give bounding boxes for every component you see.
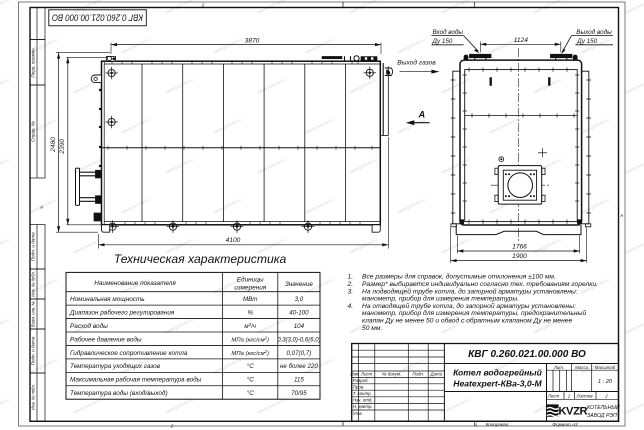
svg-text:2.: 2. xyxy=(347,281,354,288)
svg-text:А: А xyxy=(39,205,43,210)
svg-text:МВт: МВт xyxy=(243,296,257,303)
svg-text:Температура воды (вход/выход): Температура воды (вход/выход) xyxy=(70,389,168,397)
svg-text:Ду 150: Ду 150 xyxy=(432,38,453,45)
svg-text:МПа (кгс/см2): МПа (кгс/см2) xyxy=(231,349,269,357)
svg-text:Температура уходящих газов: Температура уходящих газов xyxy=(70,362,161,370)
svg-text:А: А xyxy=(619,213,623,218)
svg-text:3,0: 3,0 xyxy=(295,296,304,303)
svg-text:Н. контр.: Н. контр. xyxy=(353,404,373,409)
svg-text:50 мм.: 50 мм. xyxy=(362,325,382,332)
svg-text:Номинальная мощность: Номинальная мощность xyxy=(70,296,145,303)
svg-text:Лит.: Лит. xyxy=(553,365,564,370)
svg-text:КОТЕЛЬНЫЙ: КОТЕЛЬНЫЙ xyxy=(587,403,620,411)
svg-text:2: 2 xyxy=(201,3,205,8)
svg-text:Значение: Значение xyxy=(285,281,313,288)
svg-text:Heatexpert-КВа-3,0-М: Heatexpert-КВа-3,0-М xyxy=(453,378,542,388)
svg-text:Котел водогрейный: Котел водогрейный xyxy=(453,367,543,377)
svg-text:манометр, прибор для измерения: манометр, прибор для измерения температу… xyxy=(362,295,519,303)
svg-text:клапан Ду не менее 50 и обвод: клапан Ду не менее 50 и обвод с обратным… xyxy=(362,317,573,325)
svg-text:Вход воды: Вход воды xyxy=(433,28,464,36)
svg-text:2: 2 xyxy=(604,394,608,399)
svg-text:°С: °С xyxy=(247,390,254,397)
svg-text:Максимальная рабочая температу: Максимальная рабочая температура воды xyxy=(70,376,202,384)
svg-text:2480: 2480 xyxy=(50,137,57,153)
svg-text:Наименование показателя: Наименование показателя xyxy=(94,280,176,287)
svg-text:4100: 4100 xyxy=(226,237,241,244)
svg-text:4.: 4. xyxy=(348,303,354,310)
svg-text:1766: 1766 xyxy=(512,244,527,251)
svg-text:Выход воды: Выход воды xyxy=(576,28,612,36)
svg-text:KVZR: KVZR xyxy=(558,406,587,418)
svg-text:Изм.: Изм. xyxy=(350,372,359,377)
svg-text:Ду 150: Ду 150 xyxy=(576,38,597,45)
svg-text:манометр, прибор для измерения: манометр, прибор для измерения температу… xyxy=(362,309,586,317)
svg-text:1.: 1. xyxy=(348,274,354,281)
svg-text:Гидравлическое сопротивление к: Гидравлическое сопротивление котла xyxy=(70,349,188,357)
svg-text:Техническая характеристика: Техническая характеристика xyxy=(114,252,287,266)
svg-text:Нач. отд.: Нач. отд. xyxy=(353,398,373,403)
svg-text:КВГ 0.260.021.00.000 ВО: КВГ 0.260.021.00.000 ВО xyxy=(52,11,143,22)
svg-text:Утв.: Утв. xyxy=(353,411,363,416)
svg-text:1 : 20: 1 : 20 xyxy=(598,379,613,385)
svg-text:м3/ч: м3/ч xyxy=(244,322,256,330)
svg-text:ЗАВОД РЭП: ЗАВОД РЭП xyxy=(587,413,617,419)
svg-text:Подп. и дата: Подп. и дата xyxy=(31,232,36,261)
svg-text:Лист: Лист xyxy=(360,372,373,377)
svg-text:измерения: измерения xyxy=(234,285,267,292)
svg-text:%: % xyxy=(247,309,253,316)
svg-text:Листов: Листов xyxy=(576,394,594,399)
svg-text:На отводящей трубе котла, до з: На отводящей трубе котла, до запорной ар… xyxy=(362,302,576,310)
svg-text:Подп. и дата: Подп. и дата xyxy=(31,336,36,365)
svg-text:Рабочее давление воды: Рабочее давление воды xyxy=(70,335,142,343)
svg-text:1900: 1900 xyxy=(512,253,527,260)
svg-text:Формат А3: Формат А3 xyxy=(552,422,578,427)
svg-text:°С: °С xyxy=(247,377,254,384)
svg-text:Пров.: Пров. xyxy=(353,385,365,390)
svg-text:№ докум.: № докум. xyxy=(382,372,401,377)
svg-text:Инв. № дубл.: Инв. № дубл. xyxy=(31,271,36,297)
svg-text:Справ. №: Справ. № xyxy=(31,121,36,142)
svg-text:Выход газов: Выход газов xyxy=(397,59,436,67)
svg-text:104: 104 xyxy=(294,323,305,330)
svg-text:Т. контр.: Т. контр. xyxy=(353,391,372,396)
svg-text:3870: 3870 xyxy=(245,37,260,44)
svg-text:Диапазон рабочего регулировани: Диапазон рабочего регулирования xyxy=(69,308,175,316)
svg-text:0,07(0,7): 0,07(0,7) xyxy=(287,350,312,357)
svg-text:Взам. инв. №: Взам. инв. № xyxy=(31,301,36,327)
svg-text:Перв. примен.: Перв. примен. xyxy=(31,47,36,78)
svg-text:не более 220: не более 220 xyxy=(280,363,318,370)
svg-text:Масштаб: Масштаб xyxy=(595,365,616,370)
svg-text:115: 115 xyxy=(294,377,304,384)
svg-text:2390: 2390 xyxy=(59,139,66,155)
svg-text:Инв. № подл.: Инв. № подл. xyxy=(31,384,36,410)
svg-text:70/95: 70/95 xyxy=(291,390,307,397)
svg-text:Масса: Масса xyxy=(575,365,589,370)
svg-text:МПа (кгс/см2): МПа (кгс/см2) xyxy=(231,335,269,343)
svg-text:Все размеры для справок, допус: Все размеры для справок, допустимые откл… xyxy=(362,273,556,281)
svg-text:Разраб.: Разраб. xyxy=(353,378,369,383)
svg-text:Дата: Дата xyxy=(430,372,443,377)
svg-text:1124: 1124 xyxy=(514,37,529,44)
svg-text:°С: °С xyxy=(247,363,254,370)
svg-text:Единицы: Единицы xyxy=(237,276,264,284)
svg-text:3.: 3. xyxy=(348,288,354,295)
svg-text:2: 2 xyxy=(170,423,174,428)
svg-text:40-100: 40-100 xyxy=(289,309,309,316)
svg-text:0,3(3,0)-0,6(6,0): 0,3(3,0)-0,6(6,0) xyxy=(277,337,320,343)
svg-text:Подп.: Подп. xyxy=(412,372,424,377)
svg-text:Лист: Лист xyxy=(547,394,560,399)
svg-text:Копировал: Копировал xyxy=(486,422,509,427)
svg-text:На подводящей трубе котла, до: На подводящей трубе котла, до запорной а… xyxy=(362,287,578,295)
svg-text:А: А xyxy=(417,109,425,119)
svg-text:Размер* выбирается индивидуаль: Размер* выбирается индивидуально согласн… xyxy=(362,280,598,288)
svg-text:Расход воды: Расход воды xyxy=(70,322,108,330)
svg-text:КВГ 0.260.021.00.000 ВО: КВГ 0.260.021.00.000 ВО xyxy=(468,349,586,360)
